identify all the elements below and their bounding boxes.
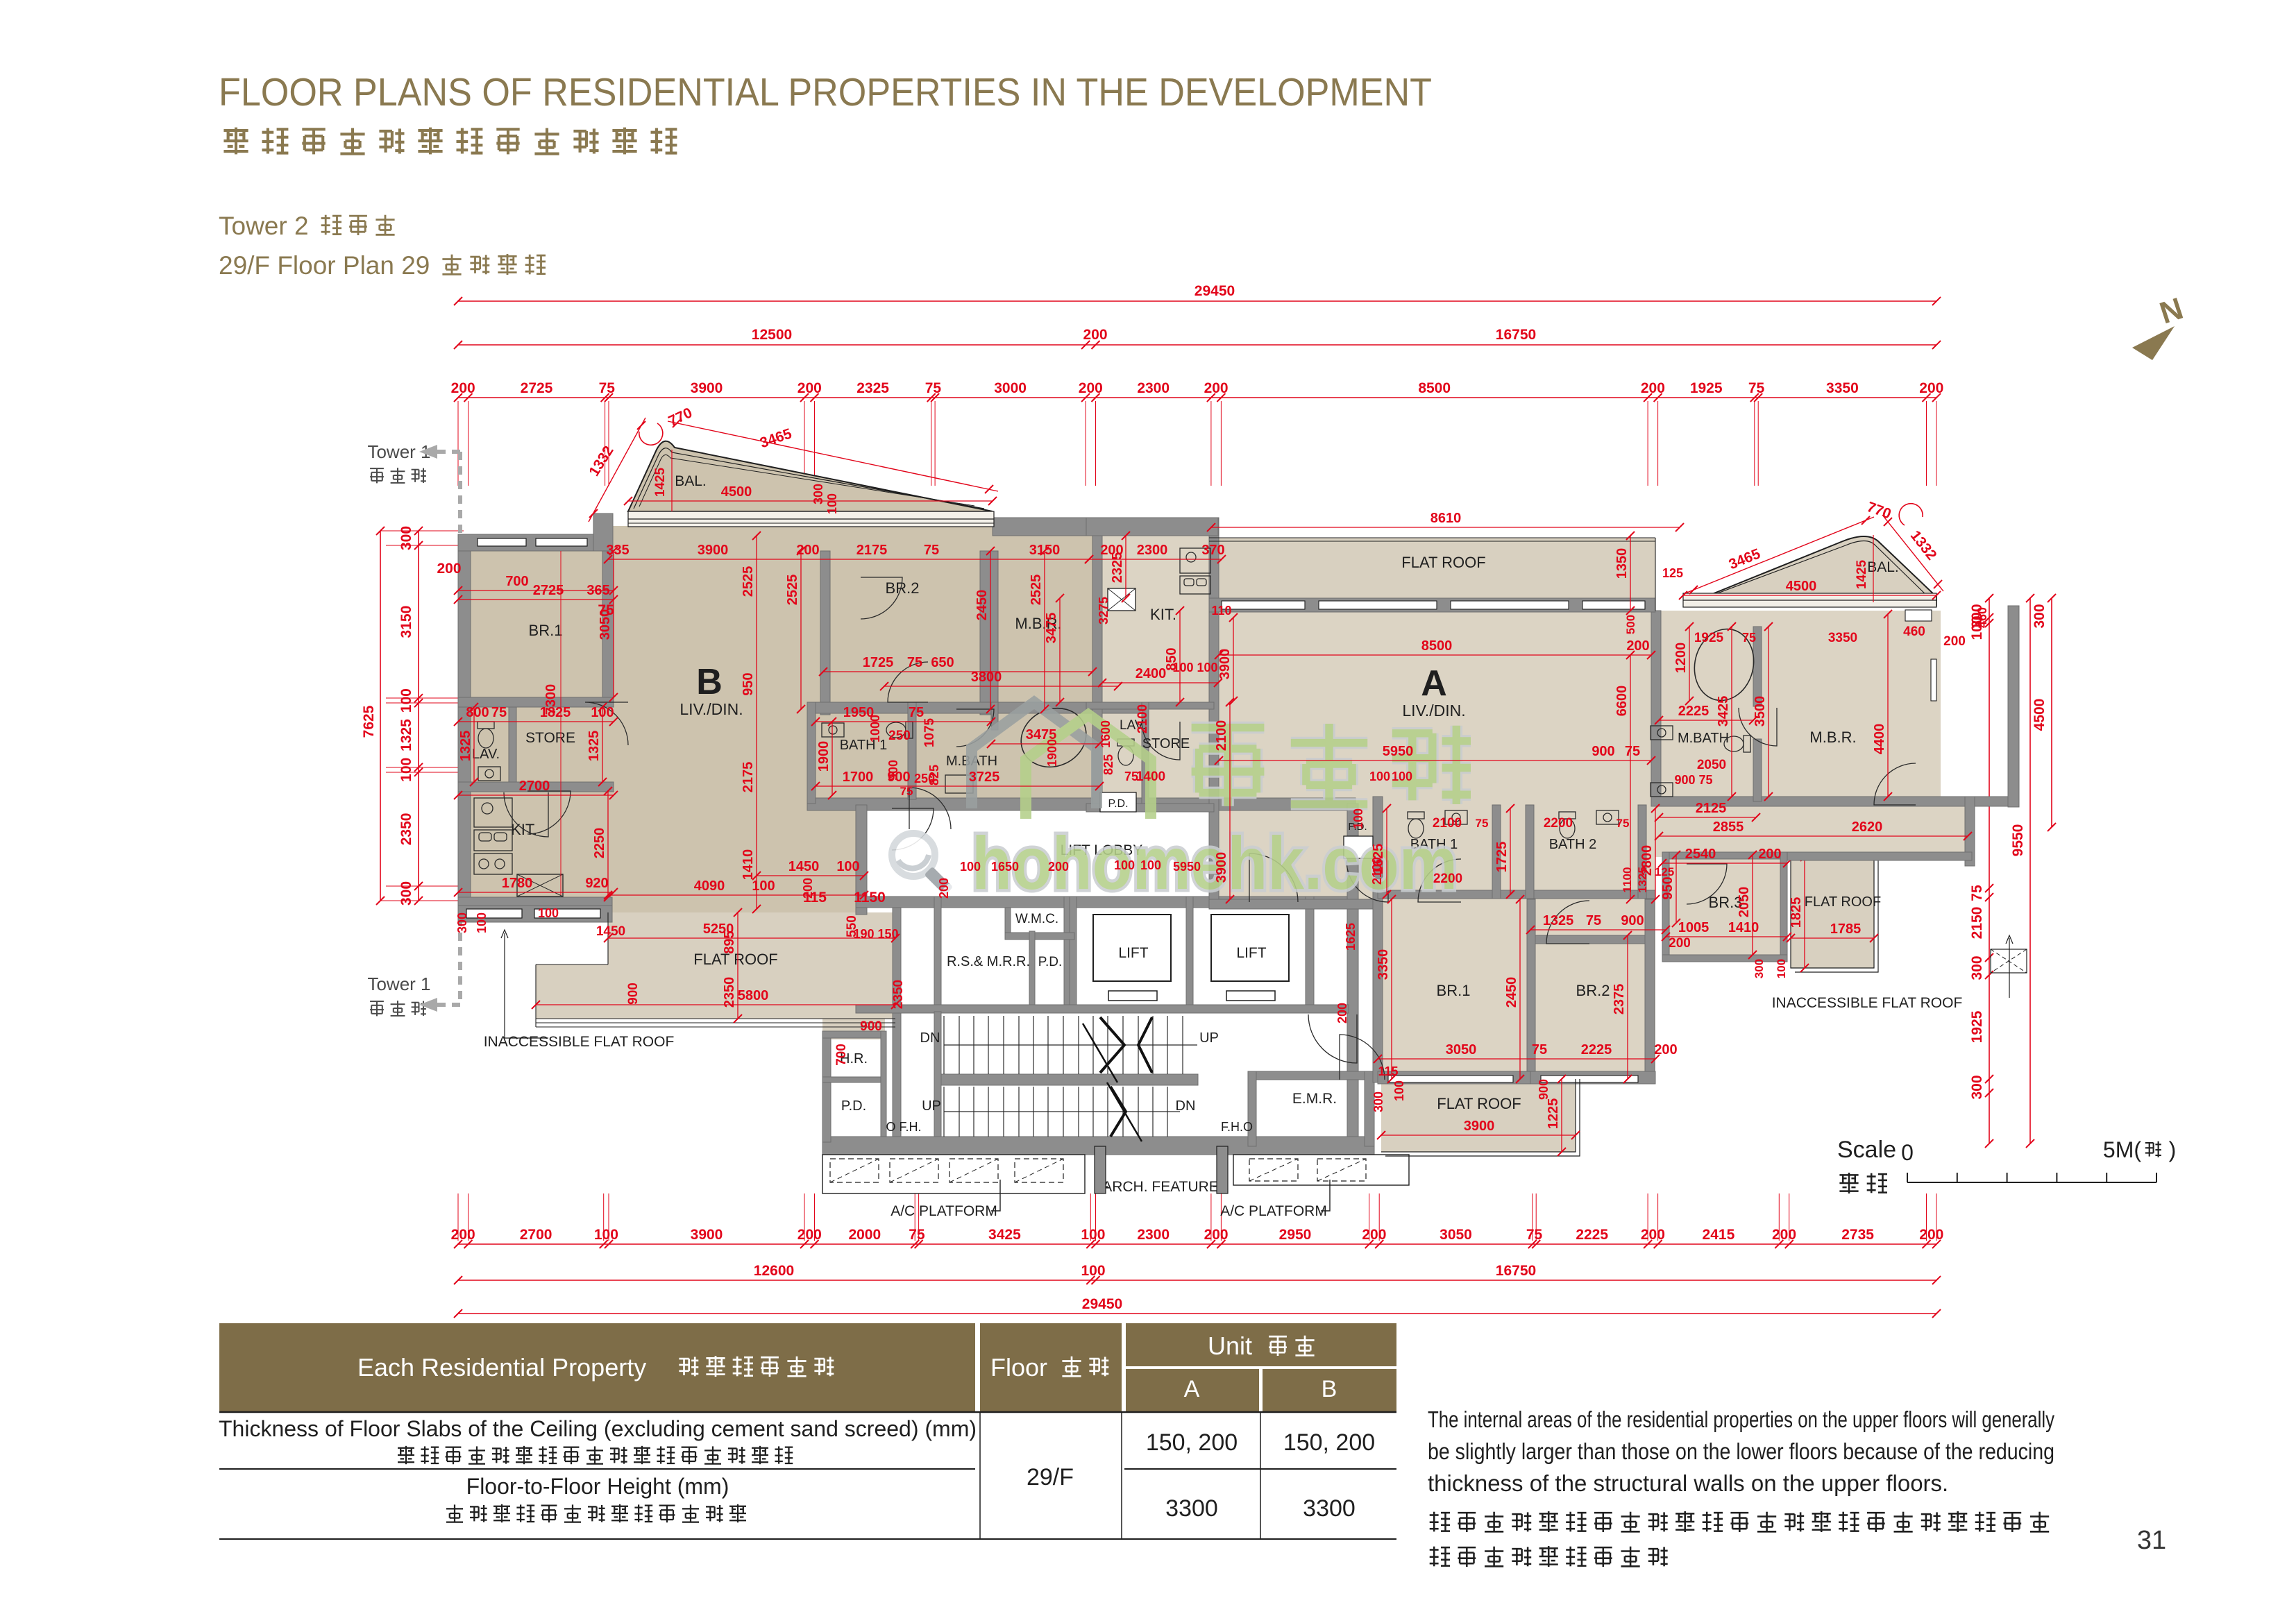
svg-text:P.D.: P.D. bbox=[1108, 798, 1128, 810]
svg-text:1650: 1650 bbox=[991, 860, 1019, 874]
svg-text:100: 100 bbox=[825, 493, 839, 514]
svg-text:300: 300 bbox=[455, 912, 469, 933]
svg-text:75: 75 bbox=[924, 543, 939, 558]
svg-text:UP: UP bbox=[1199, 1030, 1219, 1046]
svg-text:1000: 1000 bbox=[868, 715, 882, 742]
svg-text:2700: 2700 bbox=[520, 1227, 552, 1243]
svg-text:100 100: 100 100 bbox=[1172, 661, 1217, 674]
svg-text:BR.2: BR.2 bbox=[1576, 982, 1610, 999]
svg-text:500: 500 bbox=[1624, 615, 1637, 634]
svg-text:1075: 1075 bbox=[922, 717, 937, 747]
svg-text:3150: 3150 bbox=[398, 606, 414, 638]
svg-text:300: 300 bbox=[1753, 959, 1766, 978]
svg-text:2050: 2050 bbox=[1737, 887, 1752, 918]
svg-text:O F.H.: O F.H. bbox=[886, 1120, 921, 1134]
svg-text:): ) bbox=[2169, 1137, 2177, 1162]
svg-text:Thickness of Floor Slabs of th: Thickness of Floor Slabs of the Ceiling … bbox=[219, 1416, 977, 1441]
svg-text:2735: 2735 bbox=[1841, 1227, 1874, 1243]
svg-text:75: 75 bbox=[1969, 885, 1985, 901]
svg-text:3900: 3900 bbox=[1464, 1119, 1495, 1134]
svg-text:31: 31 bbox=[2137, 1526, 2166, 1555]
svg-text:W.M.C.: W.M.C. bbox=[1015, 912, 1058, 926]
svg-text:2700: 2700 bbox=[519, 779, 550, 794]
svg-text:2725: 2725 bbox=[533, 583, 564, 598]
svg-text:2175: 2175 bbox=[856, 543, 888, 558]
svg-text:FLAT ROOF: FLAT ROOF bbox=[1437, 1095, 1521, 1112]
svg-text:200: 200 bbox=[1362, 1227, 1386, 1243]
svg-text:Each Residential Property: Each Residential Property bbox=[357, 1353, 646, 1382]
svg-text:300: 300 bbox=[1371, 1091, 1385, 1112]
svg-text:1425: 1425 bbox=[653, 467, 668, 497]
svg-text:3350: 3350 bbox=[1376, 949, 1391, 980]
svg-text:7625: 7625 bbox=[361, 705, 377, 738]
svg-text:LIV./DIN.: LIV./DIN. bbox=[1402, 702, 1465, 720]
svg-text:2325: 2325 bbox=[1110, 552, 1125, 584]
svg-text:2100: 2100 bbox=[1214, 720, 1229, 751]
svg-text:300: 300 bbox=[398, 881, 414, 906]
svg-text:150, 200: 150, 200 bbox=[1146, 1429, 1238, 1456]
svg-text:75: 75 bbox=[1526, 1227, 1543, 1243]
svg-text:125: 125 bbox=[1655, 865, 1674, 878]
svg-text:100: 100 bbox=[1114, 858, 1135, 872]
svg-text:200: 200 bbox=[937, 878, 951, 899]
svg-text:Tower 2: Tower 2 bbox=[219, 212, 309, 240]
svg-text:200: 200 bbox=[451, 380, 475, 396]
svg-text:A/C PLATFORM: A/C PLATFORM bbox=[1220, 1203, 1327, 1219]
svg-text:300: 300 bbox=[1969, 1075, 1985, 1099]
svg-text:DN: DN bbox=[1176, 1098, 1196, 1114]
svg-text:16750: 16750 bbox=[1496, 327, 1536, 343]
svg-text:2525: 2525 bbox=[785, 575, 800, 606]
svg-text:100: 100 bbox=[398, 758, 414, 782]
svg-text:1425: 1425 bbox=[1855, 559, 1869, 589]
svg-text:2725: 2725 bbox=[521, 380, 553, 396]
svg-text:250: 250 bbox=[888, 729, 911, 743]
svg-text:300: 300 bbox=[1969, 955, 1985, 980]
svg-text:1325: 1325 bbox=[458, 731, 473, 762]
svg-text:200: 200 bbox=[1919, 1227, 1943, 1243]
svg-text:200: 200 bbox=[797, 380, 822, 396]
svg-text:7300: 7300 bbox=[543, 684, 559, 715]
svg-text:STORE: STORE bbox=[1142, 736, 1190, 751]
svg-text:200: 200 bbox=[1772, 1227, 1796, 1243]
svg-text:1200: 1200 bbox=[1673, 643, 1689, 674]
svg-text:2950: 2950 bbox=[1279, 1227, 1312, 1243]
svg-text:365: 365 bbox=[586, 583, 609, 598]
svg-text:1925: 1925 bbox=[1969, 1010, 1985, 1043]
svg-text:2300: 2300 bbox=[1137, 380, 1170, 396]
svg-text:2050: 2050 bbox=[1697, 758, 1726, 772]
svg-text:1400: 1400 bbox=[1136, 770, 1165, 784]
svg-text:3900: 3900 bbox=[698, 543, 729, 558]
svg-text:75: 75 bbox=[1625, 744, 1640, 759]
svg-text:75: 75 bbox=[909, 705, 924, 720]
svg-text:825: 825 bbox=[1101, 754, 1115, 775]
svg-text:4090: 4090 bbox=[694, 878, 725, 894]
svg-text:Scale: Scale bbox=[1837, 1137, 1896, 1163]
svg-text:200: 200 bbox=[796, 543, 819, 558]
svg-text:A: A bbox=[1184, 1376, 1200, 1402]
svg-text:LIFT: LIFT bbox=[1118, 945, 1148, 961]
svg-text:2125: 2125 bbox=[1696, 801, 1727, 816]
svg-text:200: 200 bbox=[1626, 638, 1649, 654]
svg-text:BR.1: BR.1 bbox=[529, 622, 563, 639]
svg-text:4500: 4500 bbox=[2032, 699, 2048, 731]
svg-text:200: 200 bbox=[797, 1227, 822, 1243]
svg-text:1410: 1410 bbox=[1728, 920, 1759, 935]
svg-text:2450: 2450 bbox=[1504, 977, 1519, 1008]
svg-text:2350: 2350 bbox=[891, 980, 906, 1009]
svg-text:460: 460 bbox=[1975, 607, 1989, 628]
svg-text:75: 75 bbox=[599, 380, 616, 396]
svg-text:2375: 2375 bbox=[1612, 984, 1627, 1015]
svg-text:BATH 2: BATH 2 bbox=[1549, 837, 1597, 852]
svg-text:3275: 3275 bbox=[1097, 597, 1111, 624]
svg-text:200: 200 bbox=[1641, 380, 1665, 396]
svg-text:1225: 1225 bbox=[1546, 1098, 1561, 1130]
svg-text:1725: 1725 bbox=[1494, 842, 1510, 873]
svg-text:200: 200 bbox=[451, 1227, 475, 1243]
svg-text:3475: 3475 bbox=[1044, 613, 1059, 644]
svg-text:2350: 2350 bbox=[398, 813, 414, 846]
svg-text:200: 200 bbox=[1048, 860, 1069, 874]
svg-text:125: 125 bbox=[1662, 566, 1683, 580]
svg-text:5950: 5950 bbox=[1383, 744, 1414, 759]
svg-text:950: 950 bbox=[1660, 876, 1675, 899]
svg-text:4500: 4500 bbox=[1786, 579, 1817, 594]
svg-text:190 150: 190 150 bbox=[853, 927, 898, 941]
svg-text:M.BATH: M.BATH bbox=[1678, 731, 1729, 746]
svg-text:200: 200 bbox=[1335, 1003, 1349, 1023]
svg-text:2325: 2325 bbox=[856, 380, 889, 396]
svg-text:R.S.& M.R.R.: R.S.& M.R.R. bbox=[947, 954, 1030, 969]
svg-text:2415: 2415 bbox=[1703, 1227, 1735, 1243]
svg-text:P.D.: P.D. bbox=[1038, 955, 1063, 969]
svg-text:100: 100 bbox=[1081, 1263, 1105, 1279]
svg-text:900: 900 bbox=[886, 760, 900, 781]
svg-text:FLAT ROOF: FLAT ROOF bbox=[1805, 894, 1881, 910]
svg-text:200: 200 bbox=[1204, 380, 1229, 396]
svg-text:DN: DN bbox=[920, 1030, 940, 1046]
svg-text:100: 100 bbox=[960, 860, 981, 874]
svg-text:5800: 5800 bbox=[738, 988, 769, 1003]
svg-text:75: 75 bbox=[1742, 631, 1756, 645]
svg-text:900: 900 bbox=[1621, 913, 1644, 928]
svg-text:F.H.O: F.H.O bbox=[1221, 1120, 1253, 1134]
svg-text:thickness of the structural wa: thickness of the structural walls on the… bbox=[1428, 1470, 1948, 1496]
svg-text:2525: 2525 bbox=[1029, 575, 1044, 606]
svg-text:100: 100 bbox=[538, 906, 559, 920]
svg-text:1825: 1825 bbox=[1789, 897, 1804, 928]
svg-text:6600: 6600 bbox=[1614, 686, 1630, 717]
svg-text:100: 100 bbox=[1081, 1227, 1105, 1243]
svg-text:200: 200 bbox=[1654, 1042, 1677, 1057]
svg-text:1925: 1925 bbox=[1694, 631, 1724, 645]
svg-text:2620: 2620 bbox=[1852, 819, 1883, 835]
svg-text:700: 700 bbox=[834, 1044, 849, 1066]
svg-text:950: 950 bbox=[741, 672, 756, 695]
svg-text:75: 75 bbox=[1532, 1042, 1547, 1057]
svg-text:200: 200 bbox=[1079, 380, 1103, 396]
svg-text:2300: 2300 bbox=[1137, 1227, 1170, 1243]
svg-text:LAV.: LAV. bbox=[472, 747, 500, 762]
svg-text:FLAT ROOF: FLAT ROOF bbox=[1401, 554, 1485, 571]
svg-text:5M(: 5M( bbox=[2103, 1137, 2141, 1162]
svg-text:75: 75 bbox=[1586, 913, 1601, 928]
svg-text:3050: 3050 bbox=[1446, 1042, 1477, 1057]
svg-text:300: 300 bbox=[398, 526, 414, 550]
svg-text:200: 200 bbox=[1669, 936, 1691, 951]
svg-text:B: B bbox=[1322, 1376, 1337, 1402]
svg-text:2855: 2855 bbox=[1713, 819, 1744, 835]
svg-text:BAL.: BAL. bbox=[675, 473, 707, 489]
svg-text:A/C PLATFORM: A/C PLATFORM bbox=[890, 1203, 997, 1219]
svg-text:BR.1: BR.1 bbox=[1437, 982, 1471, 999]
svg-text:110: 110 bbox=[1211, 604, 1231, 618]
svg-text:E.M.R.: E.M.R. bbox=[1292, 1091, 1337, 1107]
svg-text:9550: 9550 bbox=[2010, 824, 2026, 857]
svg-text:200: 200 bbox=[437, 561, 461, 577]
svg-text:920: 920 bbox=[585, 876, 608, 891]
svg-text:2350: 2350 bbox=[722, 977, 737, 1008]
svg-text:3350: 3350 bbox=[1826, 380, 1859, 396]
svg-text:3425: 3425 bbox=[1716, 696, 1731, 727]
svg-text:INACCESSIBLE FLAT ROOF: INACCESSIBLE FLAT ROOF bbox=[1772, 995, 1963, 1011]
svg-text:2100: 2100 bbox=[1370, 857, 1384, 885]
svg-text:3050: 3050 bbox=[598, 609, 613, 640]
svg-text:FLOOR PLANS OF RESIDENTIAL PRO: FLOOR PLANS OF RESIDENTIAL PROPERTIES IN… bbox=[219, 70, 1432, 114]
svg-text:be slightly larger than those: be slightly larger than those on the low… bbox=[1428, 1438, 2054, 1464]
svg-text:0: 0 bbox=[1901, 1140, 1914, 1165]
svg-text:8500: 8500 bbox=[1418, 380, 1451, 396]
svg-text:2225: 2225 bbox=[1678, 704, 1710, 719]
svg-text:3300: 3300 bbox=[1165, 1495, 1218, 1522]
svg-text:825: 825 bbox=[927, 765, 941, 785]
svg-text:P.D.: P.D. bbox=[841, 1098, 866, 1114]
svg-text:75: 75 bbox=[1617, 817, 1630, 830]
svg-text:75: 75 bbox=[1124, 770, 1138, 783]
svg-text:200: 200 bbox=[1204, 1227, 1229, 1243]
svg-text:75: 75 bbox=[900, 785, 913, 798]
svg-text:75: 75 bbox=[907, 655, 922, 670]
svg-text:800: 800 bbox=[466, 705, 489, 720]
svg-text:3425: 3425 bbox=[988, 1227, 1021, 1243]
svg-text:1785: 1785 bbox=[1830, 921, 1862, 937]
svg-text:Floor-to-Floor Height (mm): Floor-to-Floor Height (mm) bbox=[466, 1474, 729, 1499]
svg-text:100: 100 bbox=[1775, 959, 1788, 978]
svg-text:1900: 1900 bbox=[816, 741, 832, 772]
svg-text:1600: 1600 bbox=[1099, 720, 1113, 748]
svg-text:2225: 2225 bbox=[1581, 1042, 1612, 1057]
svg-text:3900: 3900 bbox=[691, 380, 723, 396]
svg-text:895: 895 bbox=[722, 931, 737, 953]
svg-text:1100: 1100 bbox=[1621, 867, 1634, 893]
svg-text:335: 335 bbox=[606, 543, 629, 558]
svg-text:29/F Floor Plan 29: 29/F Floor Plan 29 bbox=[219, 251, 430, 280]
svg-text:75: 75 bbox=[925, 380, 942, 396]
svg-text:200: 200 bbox=[1083, 327, 1107, 343]
svg-text:29/F: 29/F bbox=[1027, 1464, 1074, 1490]
svg-text:1725: 1725 bbox=[863, 655, 894, 670]
svg-text:2525: 2525 bbox=[741, 566, 756, 597]
svg-text:4400: 4400 bbox=[1872, 724, 1887, 755]
svg-text:100: 100 bbox=[1351, 808, 1365, 829]
svg-text:75: 75 bbox=[909, 1227, 925, 1243]
svg-text:300: 300 bbox=[811, 484, 825, 504]
svg-text:LIV./DIN.: LIV./DIN. bbox=[679, 700, 743, 718]
svg-text:1450: 1450 bbox=[596, 924, 625, 939]
svg-text:1410: 1410 bbox=[741, 849, 756, 881]
svg-text:1780: 1780 bbox=[502, 876, 533, 891]
svg-text:100: 100 bbox=[836, 859, 859, 874]
svg-text:100: 100 bbox=[475, 912, 489, 933]
svg-text:8610: 8610 bbox=[1430, 511, 1462, 526]
svg-text:200: 200 bbox=[801, 878, 815, 899]
svg-text:100: 100 bbox=[1369, 770, 1390, 783]
svg-text:900: 900 bbox=[1537, 1079, 1551, 1100]
svg-text:200: 200 bbox=[1758, 847, 1781, 862]
svg-text:200: 200 bbox=[1919, 380, 1943, 396]
svg-text:1700: 1700 bbox=[843, 770, 874, 785]
svg-text:460: 460 bbox=[1903, 624, 1925, 639]
svg-text:A: A bbox=[1421, 663, 1447, 704]
svg-text:ARCH. FEATURE: ARCH. FEATURE bbox=[1102, 1179, 1219, 1195]
svg-text:29450: 29450 bbox=[1082, 1296, 1122, 1312]
svg-text:75: 75 bbox=[1748, 380, 1765, 396]
svg-text:3475: 3475 bbox=[1026, 727, 1057, 742]
svg-text:1325: 1325 bbox=[586, 731, 602, 762]
svg-text:100: 100 bbox=[1392, 1080, 1406, 1101]
svg-text:2225: 2225 bbox=[1576, 1227, 1608, 1243]
svg-text:2100: 2100 bbox=[1136, 704, 1150, 733]
svg-text:8500: 8500 bbox=[1421, 638, 1453, 654]
svg-text:Unit: Unit bbox=[1208, 1332, 1252, 1360]
svg-text:3500: 3500 bbox=[1753, 696, 1768, 727]
svg-text:1325: 1325 bbox=[1543, 913, 1574, 928]
svg-text:2400: 2400 bbox=[1136, 666, 1167, 681]
svg-text:2175: 2175 bbox=[741, 762, 756, 793]
svg-text:100: 100 bbox=[752, 878, 775, 894]
svg-text:Floor: Floor bbox=[990, 1353, 1047, 1382]
svg-text:4500: 4500 bbox=[721, 484, 752, 500]
svg-text:900: 900 bbox=[1592, 744, 1614, 759]
svg-text:1450: 1450 bbox=[788, 859, 820, 874]
svg-text:3000: 3000 bbox=[994, 380, 1027, 396]
svg-text:75: 75 bbox=[1476, 817, 1489, 830]
svg-text:16750: 16750 bbox=[1496, 1263, 1536, 1279]
svg-text:12600: 12600 bbox=[754, 1263, 794, 1279]
svg-text:1150: 1150 bbox=[854, 890, 886, 906]
svg-text:75: 75 bbox=[491, 705, 507, 720]
svg-text:1900: 1900 bbox=[1045, 739, 1059, 767]
svg-text:370: 370 bbox=[1201, 543, 1224, 558]
svg-text:B: B bbox=[696, 662, 723, 702]
svg-text:3350: 3350 bbox=[1828, 631, 1857, 645]
svg-text:200: 200 bbox=[1943, 634, 1966, 649]
svg-text:M.B.R.: M.B.R. bbox=[1809, 729, 1856, 746]
svg-text:100: 100 bbox=[594, 1227, 618, 1243]
svg-text:3800: 3800 bbox=[971, 670, 1002, 685]
svg-text:UP: UP bbox=[922, 1098, 941, 1114]
svg-text:2450: 2450 bbox=[974, 590, 990, 621]
svg-text:2200: 2200 bbox=[1433, 872, 1462, 886]
svg-text:LIFT: LIFT bbox=[1236, 945, 1266, 961]
svg-text:1925: 1925 bbox=[1690, 380, 1723, 396]
svg-text:150, 200: 150, 200 bbox=[1283, 1429, 1375, 1456]
svg-text:900: 900 bbox=[626, 983, 641, 1005]
svg-text:115: 115 bbox=[1378, 1064, 1398, 1078]
svg-text:2540: 2540 bbox=[1685, 847, 1716, 862]
svg-text:300: 300 bbox=[2032, 604, 2048, 628]
svg-text:700: 700 bbox=[505, 574, 528, 589]
svg-text:BAL.: BAL. bbox=[1867, 559, 1899, 575]
svg-text:1350: 1350 bbox=[1614, 548, 1630, 579]
svg-text:The internal areas of the resi: The internal areas of the residential pr… bbox=[1428, 1407, 2054, 1432]
svg-text:KIT.: KIT. bbox=[1150, 606, 1176, 623]
svg-text:100: 100 bbox=[398, 688, 414, 713]
svg-text:2250: 2250 bbox=[592, 828, 607, 859]
svg-text:2200: 2200 bbox=[1544, 816, 1573, 831]
svg-text:2150: 2150 bbox=[1969, 907, 1985, 940]
svg-text:100: 100 bbox=[1392, 770, 1412, 783]
svg-text:900 75: 900 75 bbox=[1674, 773, 1712, 787]
svg-text:3050: 3050 bbox=[1440, 1227, 1472, 1243]
svg-text:3900: 3900 bbox=[691, 1227, 723, 1243]
svg-text:3725: 3725 bbox=[969, 770, 1000, 785]
svg-text:100: 100 bbox=[1140, 858, 1161, 872]
svg-text:INACCESSIBLE FLAT ROOF: INACCESSIBLE FLAT ROOF bbox=[484, 1034, 675, 1050]
svg-text:650: 650 bbox=[931, 655, 954, 670]
svg-text:Tower 1: Tower 1 bbox=[367, 974, 430, 994]
svg-text:29450: 29450 bbox=[1195, 283, 1235, 299]
svg-text:900: 900 bbox=[860, 1019, 882, 1034]
svg-text:2100: 2100 bbox=[1433, 816, 1462, 831]
svg-text:STORE: STORE bbox=[525, 730, 575, 746]
svg-text:200: 200 bbox=[1641, 1227, 1665, 1243]
svg-text:12500: 12500 bbox=[752, 327, 792, 343]
svg-text:1325: 1325 bbox=[1636, 867, 1649, 893]
svg-text:3300: 3300 bbox=[1303, 1495, 1356, 1522]
svg-text:5950: 5950 bbox=[1173, 860, 1201, 874]
svg-text:1005: 1005 bbox=[1678, 920, 1710, 935]
svg-text:1625: 1625 bbox=[1344, 923, 1358, 951]
svg-text:3900: 3900 bbox=[1214, 852, 1229, 883]
svg-text:2000: 2000 bbox=[848, 1227, 881, 1243]
svg-text:1325: 1325 bbox=[398, 719, 414, 751]
svg-text:2300: 2300 bbox=[1137, 543, 1168, 558]
